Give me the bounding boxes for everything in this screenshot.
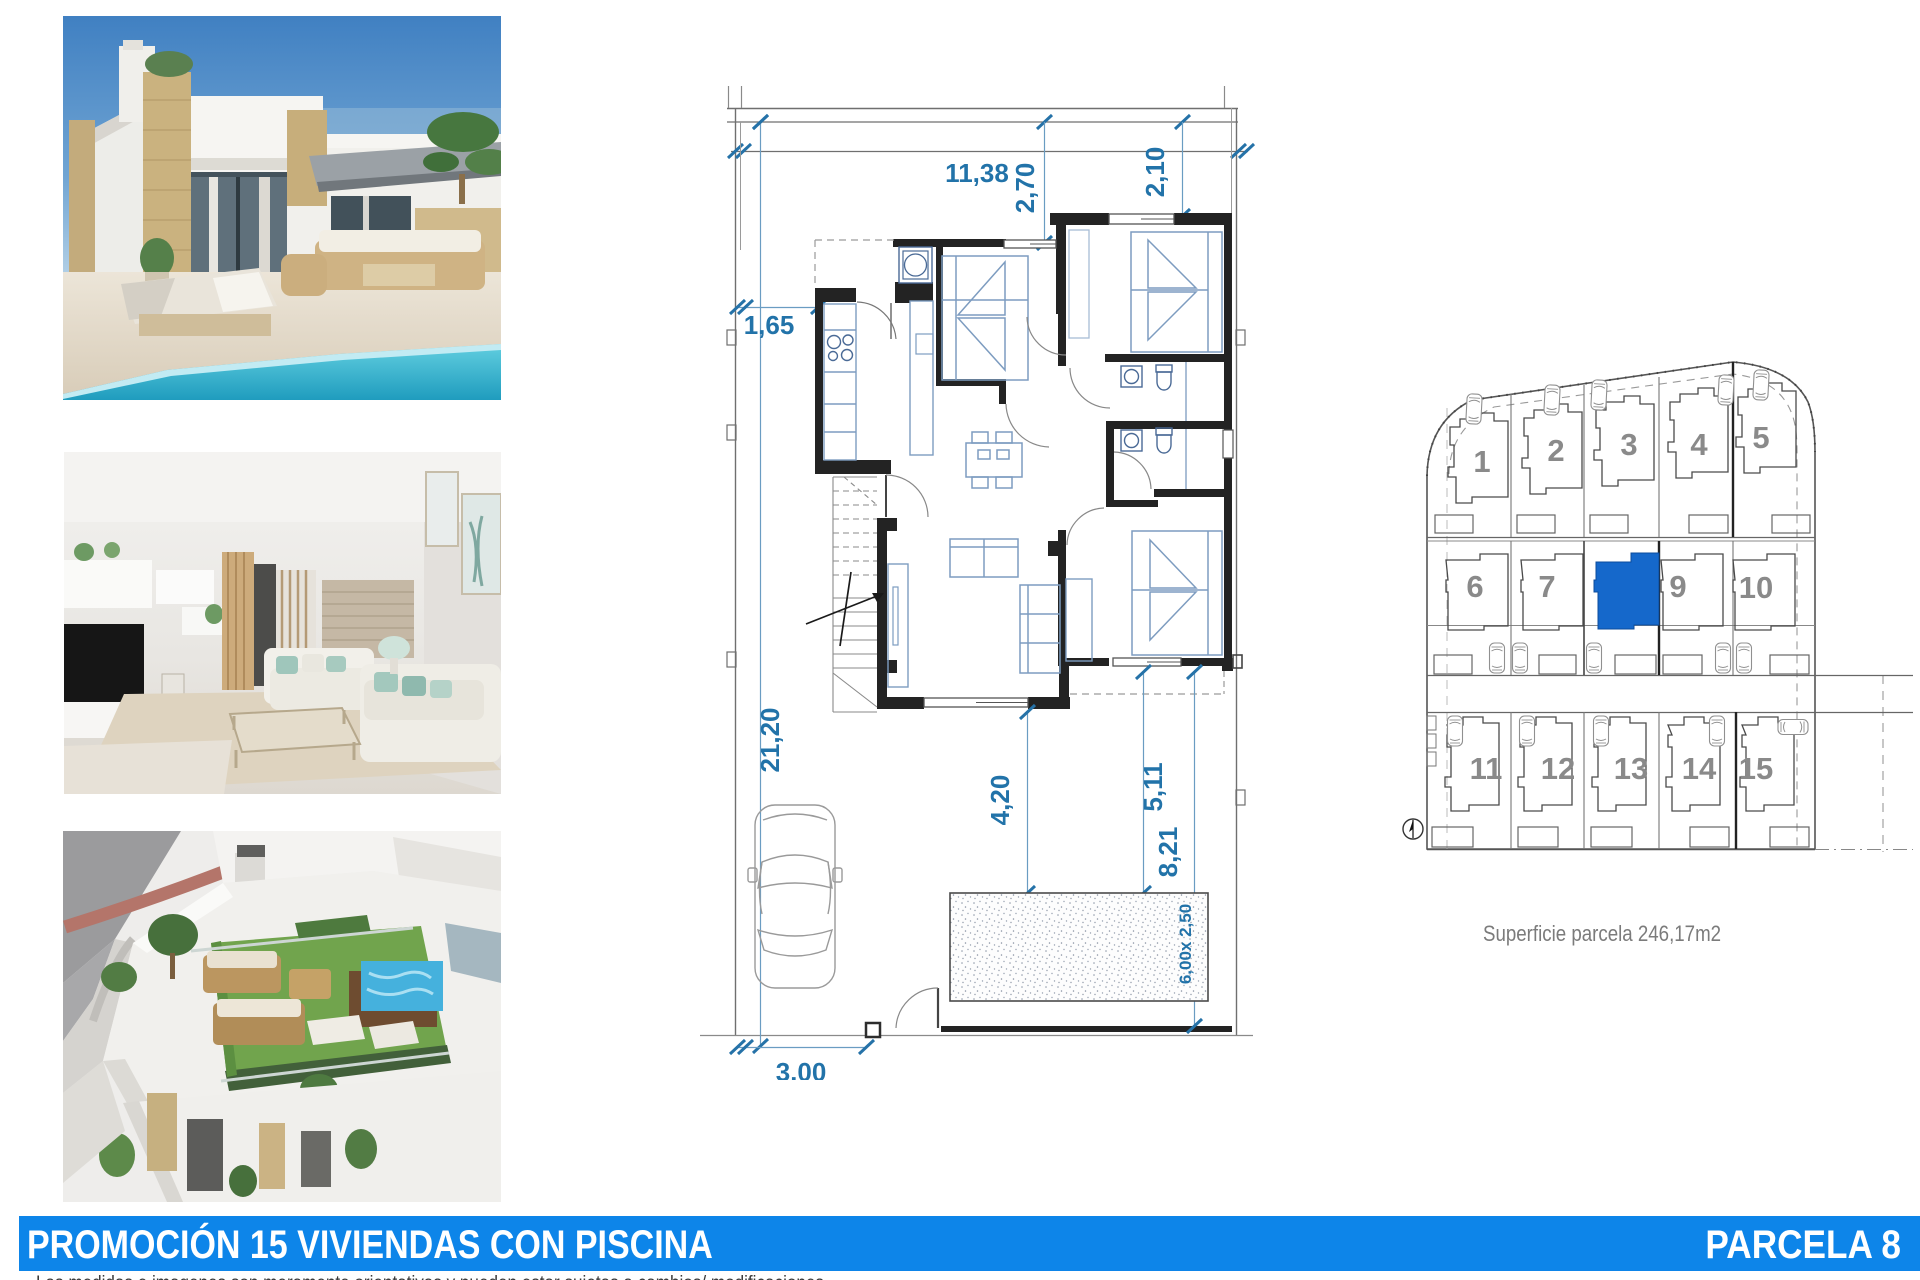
svg-text:5,11: 5,11: [1138, 762, 1168, 811]
svg-text:1,65: 1,65: [744, 310, 795, 340]
svg-text:9: 9: [1669, 569, 1686, 604]
svg-text:4: 4: [1690, 427, 1708, 462]
svg-text:21,20: 21,20: [755, 707, 785, 772]
svg-text:3,00: 3,00: [776, 1057, 827, 1080]
svg-text:4,20: 4,20: [985, 775, 1015, 826]
svg-text:13: 13: [1614, 751, 1648, 786]
svg-text:6,00x 2,50: 6,00x 2,50: [1176, 904, 1195, 984]
svg-text:10: 10: [1739, 570, 1773, 605]
svg-text:2,10: 2,10: [1140, 147, 1170, 198]
svg-text:7: 7: [1538, 569, 1555, 604]
svg-text:6: 6: [1466, 569, 1483, 604]
svg-text:1: 1: [1473, 444, 1490, 479]
svg-text:2: 2: [1547, 433, 1564, 468]
svg-text:12: 12: [1541, 751, 1575, 786]
svg-text:11,38: 11,38: [945, 158, 1009, 188]
svg-text:11: 11: [1470, 751, 1503, 786]
svg-text:5: 5: [1752, 420, 1769, 455]
svg-text:2,70: 2,70: [1010, 163, 1040, 214]
svg-text:14: 14: [1682, 751, 1717, 786]
svg-text:15: 15: [1739, 751, 1773, 786]
svg-text:3: 3: [1620, 427, 1637, 462]
svg-text:8,21: 8,21: [1153, 827, 1183, 878]
